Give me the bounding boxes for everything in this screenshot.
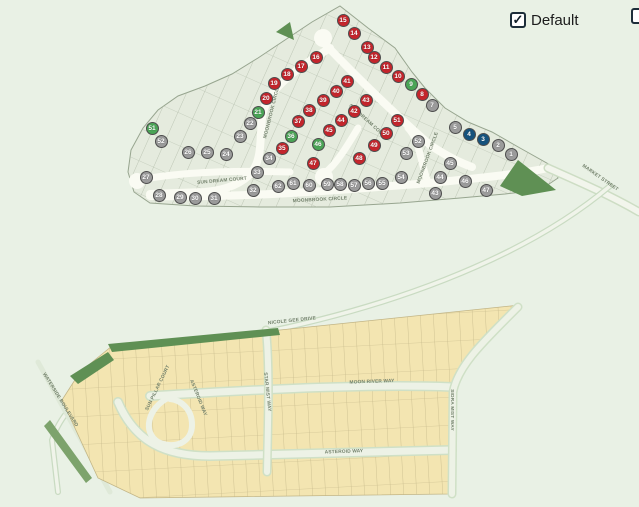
lot-marker-40[interactable]: 40	[330, 85, 343, 98]
lot-marker-43[interactable]: 43	[360, 94, 373, 107]
lot-marker-9[interactable]: 9	[405, 78, 418, 91]
lot-marker-12[interactable]: 12	[368, 51, 381, 64]
map-filter-controls: ✓ Default	[510, 8, 579, 32]
site-plan-viewer: SUN DREAM COURTSUN DREAM COURTMOONBROOK …	[0, 0, 639, 507]
lot-marker-53[interactable]: 53	[400, 147, 413, 160]
lot-marker-56[interactable]: 56	[362, 177, 375, 190]
lot-marker-8[interactable]: 8	[416, 88, 429, 101]
lot-marker-55[interactable]: 55	[376, 177, 389, 190]
lot-marker-37[interactable]: 37	[292, 115, 305, 128]
lot-marker-21[interactable]: 21	[252, 106, 265, 119]
lot-marker-59[interactable]: 59	[321, 178, 334, 191]
lot-marker-51[interactable]: 51	[391, 114, 404, 127]
lot-marker-60[interactable]: 60	[303, 179, 316, 192]
lot-marker-18[interactable]: 18	[281, 68, 294, 81]
lot-marker-46[interactable]: 46	[312, 138, 325, 151]
lot-marker-52[interactable]: 52	[155, 135, 168, 148]
lot-marker-45[interactable]: 45	[323, 124, 336, 137]
lot-marker-35[interactable]: 35	[276, 142, 289, 155]
upper-phase	[128, 6, 558, 207]
lot-marker-2[interactable]: 2	[492, 139, 505, 152]
lot-marker-38[interactable]: 38	[303, 104, 316, 117]
lot-marker-20[interactable]: 20	[260, 92, 273, 105]
lot-marker-58[interactable]: 58	[334, 178, 347, 191]
lot-marker-36[interactable]: 36	[285, 130, 298, 143]
lot-marker-52[interactable]: 52	[412, 135, 425, 148]
lot-marker-16[interactable]: 16	[310, 51, 323, 64]
lot-marker-57[interactable]: 57	[348, 179, 361, 192]
lot-marker-54[interactable]: 54	[395, 171, 408, 184]
lot-marker-32[interactable]: 32	[247, 184, 260, 197]
lot-marker-62[interactable]: 62	[272, 180, 285, 193]
lot-marker-41[interactable]: 41	[341, 75, 354, 88]
lot-marker-47[interactable]: 47	[480, 184, 493, 197]
lower-phase	[44, 305, 520, 498]
lot-marker-28[interactable]: 28	[153, 189, 166, 202]
checkmark-icon: ✓	[513, 13, 524, 26]
lot-marker-47[interactable]: 47	[307, 157, 320, 170]
lot-marker-45[interactable]: 45	[444, 157, 457, 170]
lot-marker-5[interactable]: 5	[449, 121, 462, 134]
lot-marker-19[interactable]: 19	[268, 77, 281, 90]
lot-marker-26[interactable]: 26	[182, 146, 195, 159]
lot-marker-22[interactable]: 22	[244, 117, 257, 130]
lot-marker-50[interactable]: 50	[380, 127, 393, 140]
lot-marker-14[interactable]: 14	[348, 27, 361, 40]
default-filter-checkbox[interactable]: ✓	[510, 12, 526, 28]
lot-marker-51[interactable]: 51	[146, 122, 159, 135]
lot-marker-24[interactable]: 24	[220, 148, 233, 161]
lot-marker-1[interactable]: 1	[505, 148, 518, 161]
lot-marker-29[interactable]: 29	[174, 191, 187, 204]
lot-marker-27[interactable]: 27	[140, 171, 153, 184]
secondary-filter-checkbox[interactable]	[631, 8, 639, 24]
lot-marker-17[interactable]: 17	[295, 60, 308, 73]
lot-marker-33[interactable]: 33	[251, 166, 264, 179]
lot-marker-43[interactable]: 43	[429, 187, 442, 200]
lot-marker-44[interactable]: 44	[434, 171, 447, 184]
lot-marker-7[interactable]: 7	[426, 99, 439, 112]
lot-marker-49[interactable]: 49	[368, 139, 381, 152]
site-map-graphic	[0, 0, 639, 507]
lot-marker-48[interactable]: 48	[353, 152, 366, 165]
lot-marker-61[interactable]: 61	[287, 177, 300, 190]
lot-marker-30[interactable]: 30	[189, 192, 202, 205]
lot-marker-25[interactable]: 25	[201, 146, 214, 159]
lot-marker-44[interactable]: 44	[335, 114, 348, 127]
lot-marker-39[interactable]: 39	[317, 94, 330, 107]
lot-marker-46[interactable]: 46	[459, 175, 472, 188]
lot-marker-34[interactable]: 34	[263, 152, 276, 165]
lot-marker-11[interactable]: 11	[380, 61, 393, 74]
default-filter-label: Default	[531, 12, 579, 29]
lot-marker-10[interactable]: 10	[392, 70, 405, 83]
lot-marker-15[interactable]: 15	[337, 14, 350, 27]
lot-marker-4[interactable]: 4	[463, 128, 476, 141]
lot-marker-42[interactable]: 42	[348, 105, 361, 118]
lot-marker-3[interactable]: 3	[477, 133, 490, 146]
lot-marker-23[interactable]: 23	[234, 130, 247, 143]
lot-marker-31[interactable]: 31	[208, 192, 221, 205]
